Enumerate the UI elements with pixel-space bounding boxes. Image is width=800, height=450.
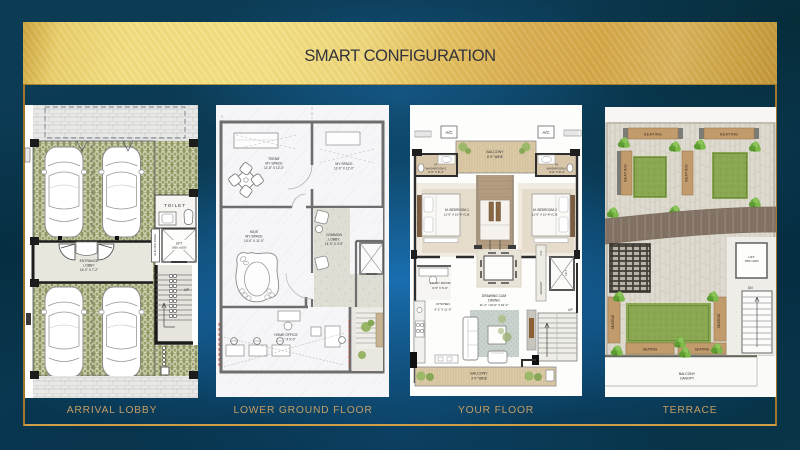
svg-text:MY SPACE: MY SPACE bbox=[265, 162, 283, 166]
svg-text:SEATING: SEATING bbox=[685, 164, 689, 182]
svg-text:SEATING: SEATING bbox=[643, 348, 658, 352]
svg-text:BALCONY: BALCONY bbox=[679, 372, 696, 376]
svg-text:11'-0" X 12'-0": 11'-0" X 12'-0" bbox=[334, 167, 354, 171]
svg-text:LIFT: LIFT bbox=[748, 255, 754, 259]
svg-text:LIFT: LIFT bbox=[564, 270, 568, 276]
svg-text:HOME OFFICE: HOME OFFICE bbox=[274, 333, 298, 337]
svg-text:LOBBY: LOBBY bbox=[328, 238, 340, 242]
svg-text:6'-5" X 6'-0": 6'-5" X 6'-0" bbox=[432, 286, 448, 290]
svg-text:BALCONY: BALCONY bbox=[486, 150, 504, 154]
svg-text:UP: UP bbox=[568, 308, 573, 312]
svg-text:SEATING: SEATING bbox=[695, 348, 710, 352]
svg-text:KITCHEN: KITCHEN bbox=[436, 302, 450, 306]
svg-text:SEATING: SEATING bbox=[644, 133, 662, 137]
svg-text:11'-5" X 10'-6"+C.B.: 11'-5" X 10'-6"+C.B. bbox=[532, 213, 558, 217]
svg-text:MY SPACE: MY SPACE bbox=[245, 235, 263, 239]
svg-text:A/C: A/C bbox=[542, 130, 549, 135]
svg-text:CANOPY: CANOPY bbox=[680, 377, 695, 381]
svg-text:11'-2" / 10'-0" X 19'-2": 11'-2" / 10'-0" X 19'-2" bbox=[480, 303, 509, 307]
svg-text:A/C: A/C bbox=[445, 130, 452, 135]
svg-text:GROCERY: GROCERY bbox=[539, 281, 543, 294]
svg-text:ENTRANCE: ENTRANCE bbox=[80, 259, 99, 263]
svg-text:TEENS': TEENS' bbox=[268, 157, 280, 161]
svg-text:14'-9" X 4'-9": 14'-9" X 4'-9" bbox=[325, 242, 343, 246]
svg-text:1850 x1600: 1850 x1600 bbox=[172, 246, 187, 250]
svg-text:6'-2" X 11'-0": 6'-2" X 11'-0" bbox=[434, 308, 451, 312]
svg-text:6' 0" WIDE: 6' 0" WIDE bbox=[487, 155, 504, 159]
svg-text:SEATING: SEATING bbox=[720, 133, 738, 137]
svg-text:BALCONY: BALCONY bbox=[470, 372, 488, 376]
svg-text:TOILET: TOILET bbox=[164, 203, 186, 208]
svg-text:1550 x1300: 1550 x1300 bbox=[744, 259, 759, 263]
svg-text:14'-0" X 11'-0": 14'-0" X 11'-0" bbox=[244, 239, 264, 243]
svg-text:11'-5" X 10'-6"+C.B.: 11'-5" X 10'-6"+C.B. bbox=[444, 213, 470, 217]
svg-text:M. BEDROOM-1: M. BEDROOM-1 bbox=[445, 208, 469, 212]
svg-text:ELECTRIC PANEL: ELECTRIC PANEL bbox=[153, 233, 157, 255]
svg-text:COMMON: COMMON bbox=[326, 233, 342, 237]
svg-text:DN: DN bbox=[748, 286, 753, 290]
svg-text:11'-5" X 13'-0": 11'-5" X 13'-0" bbox=[264, 166, 284, 170]
svg-text:LOBBY: LOBBY bbox=[83, 264, 95, 268]
svg-text:SEATING: SEATING bbox=[717, 313, 721, 328]
svg-text:STUDY ROOM: STUDY ROOM bbox=[430, 281, 451, 285]
svg-text:UP: UP bbox=[184, 288, 190, 292]
svg-text:3' 0" WIDE: 3' 0" WIDE bbox=[471, 377, 488, 381]
svg-text:DINING: DINING bbox=[488, 299, 500, 303]
svg-text:SEATING: SEATING bbox=[611, 314, 615, 329]
svg-text:16'-0" X 7'-2": 16'-0" X 7'-2" bbox=[80, 268, 98, 272]
svg-text:DRAWING CUM: DRAWING CUM bbox=[482, 294, 506, 298]
svg-text:MY SPACE: MY SPACE bbox=[335, 162, 353, 166]
svg-text:SEATING: SEATING bbox=[624, 164, 628, 182]
svg-text:P.U.: P.U. bbox=[539, 250, 543, 255]
svg-text:6'-0" X 8'-4": 6'-0" X 8'-4" bbox=[428, 170, 444, 174]
svg-text:M. BEDROOM-2: M. BEDROOM-2 bbox=[533, 208, 557, 212]
svg-text:6'-0" X 8'-4": 6'-0" X 8'-4" bbox=[549, 170, 565, 174]
svg-text:KIDS: KIDS bbox=[250, 230, 259, 234]
